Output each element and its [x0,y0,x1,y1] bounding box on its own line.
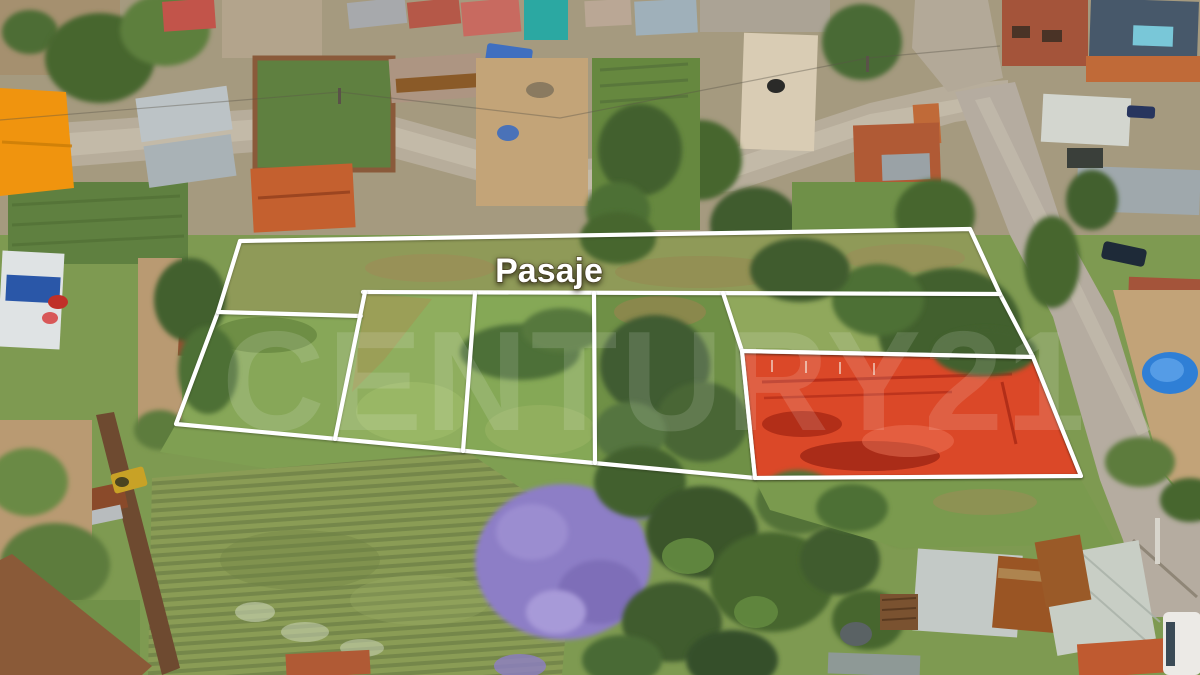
scrub-dry-patch [933,489,1037,515]
skylight [1133,25,1174,46]
aerial-property-photo: CENTURY21 Pasaje [0,0,1200,675]
ac-unit [840,622,872,646]
yard-blue-tarp [497,125,519,141]
dark-shed-tr [1067,148,1103,168]
top-mid-walls [700,0,830,32]
laundry-pink [42,312,58,324]
orange-courtyard-walls [1086,56,1200,82]
power-pole-2 [866,56,869,72]
pink-roof-house [162,0,216,32]
gray-shed-mid [882,153,931,181]
metal-roof-top [634,0,698,36]
laundry-red [48,295,68,309]
field-blotch-1 [220,530,380,590]
dark-car-1 [1127,105,1156,118]
br-gray-roofs [828,652,921,675]
pasaje-label: Pasaje [495,252,603,290]
scrub-tree [816,484,888,532]
pasaje-dirt-1 [365,254,495,282]
top-walls-block [222,0,322,58]
walled-garden [255,58,393,170]
bc-tree-light-1 [662,538,714,574]
compound-tree-1 [598,104,682,196]
east-green-1 [1105,437,1175,487]
concrete-pole [1155,518,1160,564]
water-tank [767,79,785,93]
road-side-tree-1 [1024,216,1080,308]
field-blotch-2 [350,575,490,625]
brick-window-2 [1042,30,1062,42]
scene-svg: CENTURY21 Pasaje [0,0,1200,675]
century21-watermark: CENTURY21 [222,302,1088,461]
pink-roof-house-2 [461,0,522,36]
field-flowers-2 [281,622,329,642]
van-windows [1166,622,1175,666]
white-roof-tr [1041,94,1131,147]
bottom-small-roof [285,650,370,675]
jacaranda-light-2 [526,590,586,634]
field-flowers-1 [235,602,275,622]
bc-tree-light-2 [734,596,778,628]
road-side-tree-2 [1066,170,1118,230]
machine-dark-part [115,477,129,487]
power-pole-1 [338,88,341,104]
jacaranda-light-1 [496,504,568,560]
teal-structure [524,0,568,40]
dirt-yard-center [476,58,588,206]
tan-roof-top [584,0,631,27]
brick-window-1 [1012,26,1030,38]
lot-divider-line-1 [363,292,1000,294]
yard-clutter [526,82,554,98]
tm-tree-1 [822,4,902,80]
blue-tarp-highlight [1150,358,1184,382]
